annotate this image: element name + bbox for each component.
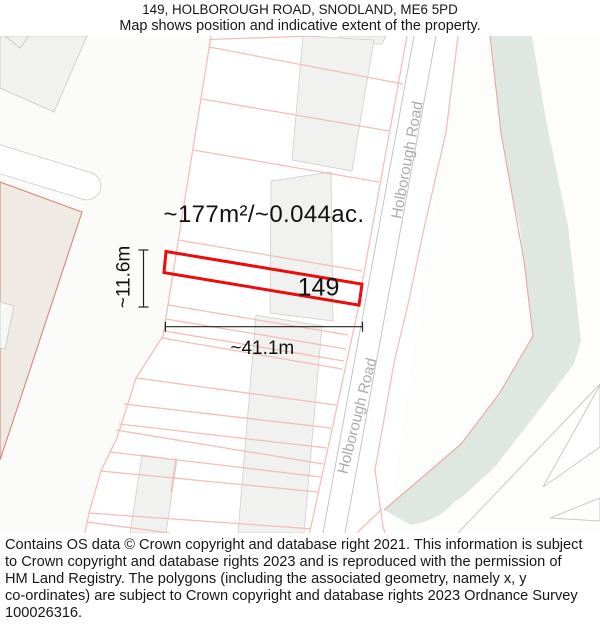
svg-text:~11.6m: ~11.6m	[114, 246, 135, 309]
svg-text:~41.1m: ~41.1m	[230, 338, 294, 359]
svg-text:~177m²/~0.044ac.: ~177m²/~0.044ac.	[164, 201, 365, 228]
svg-text:149: 149	[298, 274, 340, 302]
